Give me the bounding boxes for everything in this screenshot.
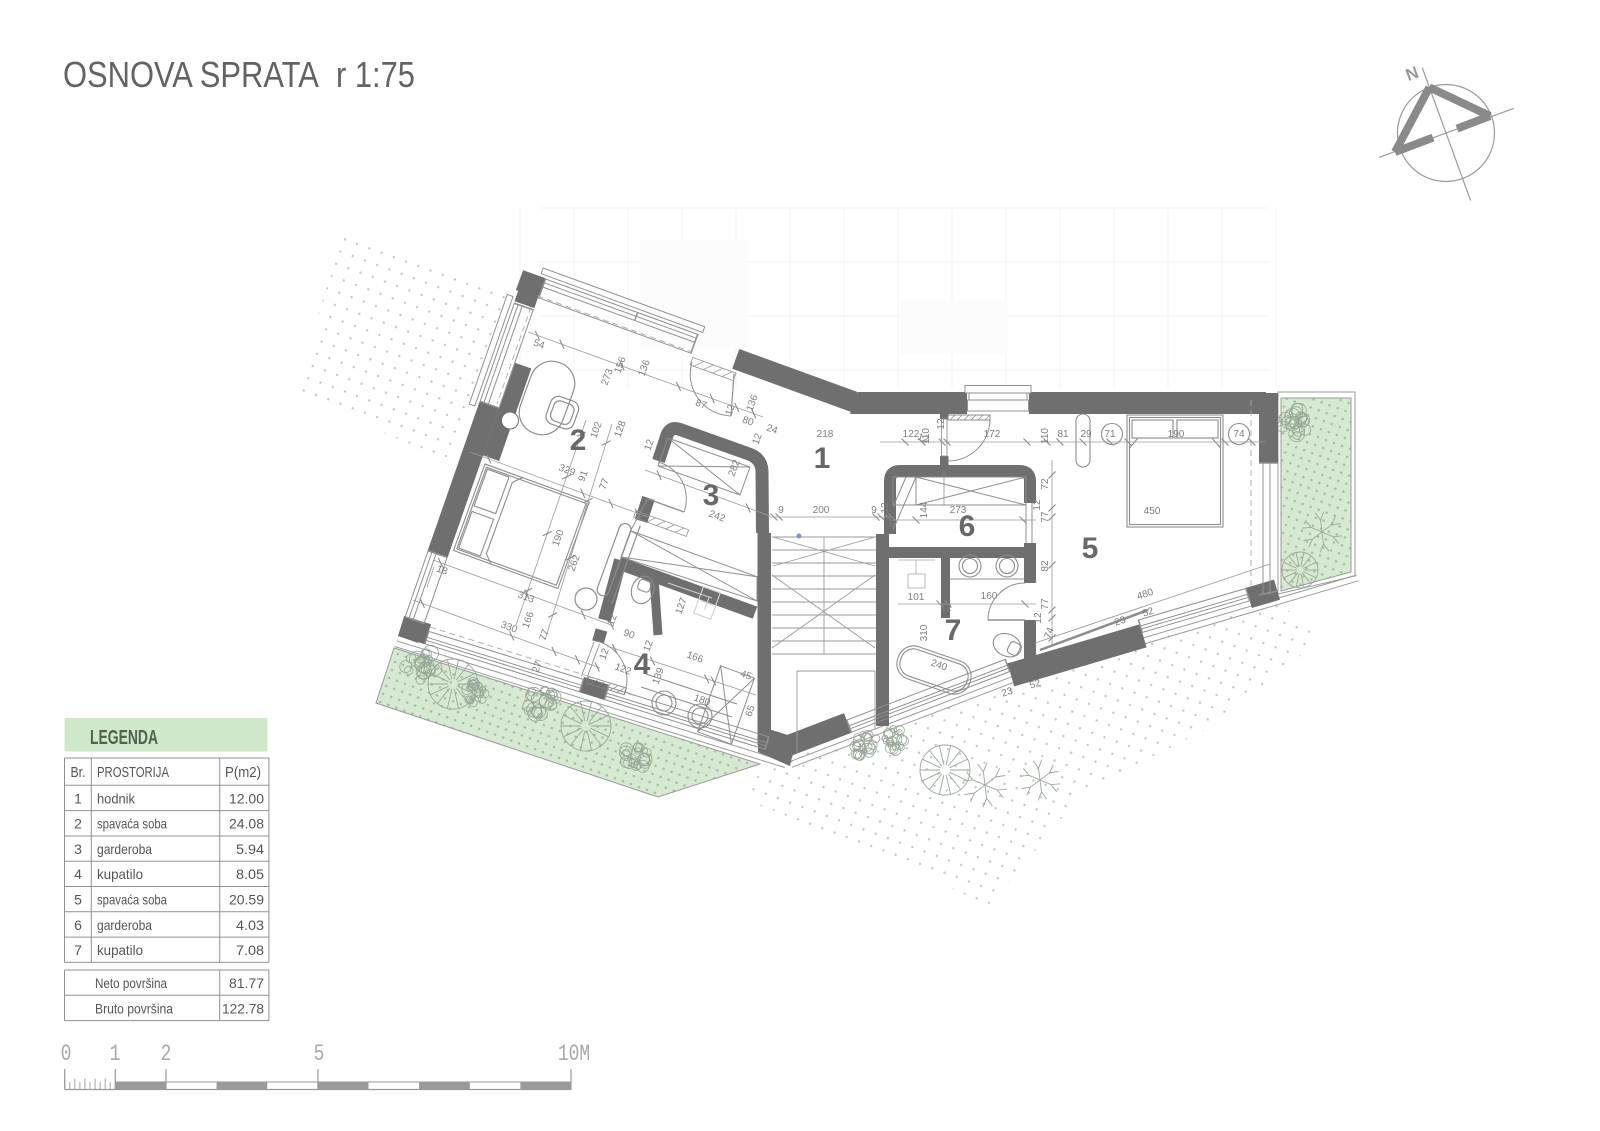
svg-text:1: 1	[110, 1042, 121, 1068]
svg-text:PROSTORIJA: PROSTORIJA	[97, 765, 169, 781]
svg-text:kupatilo: kupatilo	[97, 866, 143, 882]
svg-text:2: 2	[161, 1042, 172, 1068]
svg-text:160: 160	[981, 591, 998, 602]
svg-text:29: 29	[1080, 429, 1092, 440]
svg-text:7.08: 7.08	[236, 942, 264, 958]
svg-text:101: 101	[908, 592, 925, 603]
svg-text:2: 2	[74, 816, 82, 832]
svg-text:spavaća soba: spavaća soba	[97, 892, 167, 908]
svg-text:450: 450	[1144, 506, 1161, 517]
svg-text:9: 9	[778, 505, 784, 516]
svg-text:12.00: 12.00	[229, 790, 264, 806]
svg-text:3: 3	[74, 841, 82, 857]
svg-text:garderoba: garderoba	[97, 917, 152, 933]
svg-text:garderoba: garderoba	[97, 841, 152, 857]
svg-text:77: 77	[1040, 598, 1051, 610]
svg-text:12: 12	[1033, 612, 1044, 624]
svg-text:190: 190	[1168, 429, 1185, 440]
svg-text:1: 1	[814, 442, 831, 475]
svg-text:LEGENDA: LEGENDA	[90, 727, 158, 749]
svg-text:20.59: 20.59	[229, 892, 264, 908]
svg-text:spavaća soba: spavaća soba	[97, 816, 167, 832]
svg-text:9: 9	[889, 519, 895, 530]
svg-text:12: 12	[1032, 499, 1043, 511]
svg-text:8.05: 8.05	[236, 866, 264, 882]
svg-text:10M: 10M	[558, 1042, 590, 1068]
svg-text:81.77: 81.77	[229, 975, 264, 991]
svg-text:81: 81	[1057, 429, 1069, 440]
svg-text:7: 7	[74, 942, 82, 958]
svg-text:122.78: 122.78	[222, 1001, 264, 1017]
svg-text:7: 7	[945, 614, 962, 647]
svg-text:5: 5	[74, 892, 82, 908]
svg-text:77: 77	[1040, 511, 1051, 523]
svg-text:71: 71	[1104, 429, 1116, 440]
svg-text:1: 1	[74, 790, 82, 806]
svg-text:5: 5	[1082, 532, 1099, 565]
svg-text:200: 200	[813, 505, 830, 516]
svg-text:218: 218	[817, 429, 834, 440]
svg-text:0: 0	[61, 1042, 72, 1068]
svg-text:310: 310	[919, 624, 930, 641]
svg-text:Neto površina: Neto površina	[95, 975, 167, 991]
svg-text:P(m2): P(m2)	[225, 764, 261, 781]
svg-text:5: 5	[314, 1042, 325, 1068]
svg-text:12: 12	[880, 502, 891, 514]
svg-text:110: 110	[1040, 428, 1051, 444]
svg-text:5.94: 5.94	[236, 841, 264, 857]
svg-text:3: 3	[703, 479, 720, 512]
svg-text:82: 82	[1040, 560, 1051, 572]
svg-text:Bruto površina: Bruto površina	[95, 1001, 173, 1017]
svg-text:kupatilo: kupatilo	[97, 942, 143, 958]
svg-text:hodnik: hodnik	[97, 790, 136, 806]
svg-text:9: 9	[871, 505, 877, 516]
svg-text:172: 172	[984, 429, 1001, 440]
svg-text:74: 74	[1233, 429, 1245, 440]
svg-text:6: 6	[959, 510, 976, 543]
svg-text:Br.: Br.	[71, 765, 86, 781]
svg-text:72: 72	[1040, 478, 1051, 490]
svg-text:4: 4	[74, 866, 82, 882]
svg-text:4: 4	[634, 648, 651, 681]
svg-text:4.03: 4.03	[236, 917, 264, 933]
svg-text:12: 12	[940, 603, 952, 614]
svg-text:OSNOVA SPRATA r 1:75: OSNOVA SPRATA r 1:75	[63, 54, 415, 95]
svg-text:144: 144	[919, 501, 930, 518]
svg-text:12: 12	[936, 418, 947, 430]
svg-text:6: 6	[74, 917, 82, 933]
svg-text:2: 2	[570, 424, 587, 457]
svg-text:24.08: 24.08	[229, 816, 264, 832]
